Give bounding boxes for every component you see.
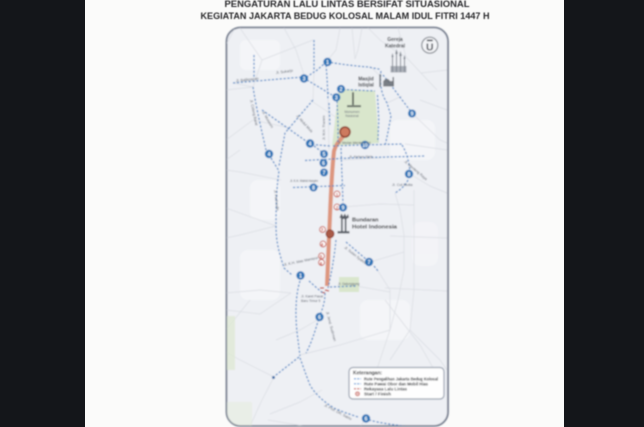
svg-text:4: 4 — [309, 142, 312, 148]
svg-text:6: 6 — [322, 161, 325, 167]
svg-text:1: 1 — [326, 60, 329, 66]
svg-text:8: 8 — [408, 172, 411, 178]
svg-text:Nasional: Nasional — [345, 114, 358, 118]
svg-text:Baru Timur 5: Baru Timur 5 — [301, 299, 321, 303]
svg-text:Istiqlal: Istiqlal — [358, 83, 374, 89]
svg-text:9: 9 — [411, 112, 414, 118]
svg-text:U: U — [426, 42, 434, 53]
svg-text:Bundaran: Bundaran — [352, 218, 379, 224]
svg-text:9: 9 — [342, 206, 345, 212]
svg-text:Jl. M.H. Thamrin: Jl. M.H. Thamrin — [322, 115, 326, 140]
svg-text:KEGIATAN JAKARTA BEDUG KOLOSAL: KEGIATAN JAKARTA BEDUG KOLOSAL MALAM IDU… — [201, 10, 490, 21]
svg-text:Hotel Indonesia: Hotel Indonesia — [352, 225, 398, 231]
svg-text:3: 3 — [335, 95, 338, 101]
svg-text:3: 3 — [303, 77, 306, 83]
svg-text:Start / Finish: Start / Finish — [364, 391, 391, 396]
svg-text:1: 1 — [299, 274, 302, 280]
svg-text:6: 6 — [365, 417, 368, 423]
svg-text:Gereja: Gereja — [387, 37, 403, 43]
svg-text:PENGATURAN LALU LINTAS BERSIFA: PENGATURAN LALU LINTAS BERSIFAT SITUASIO… — [225, 0, 470, 9]
svg-text:5: 5 — [323, 152, 326, 158]
svg-text:Jl. Kebon Sirih: Jl. Kebon Sirih — [349, 155, 373, 159]
svg-text:Jl. Medan Merdeka Sel.: Jl. Medan Merdeka Sel. — [338, 141, 372, 145]
svg-text:Jl. K.H. Wahid Hasyim: Jl. K.H. Wahid Hasyim — [290, 179, 318, 183]
svg-text:4: 4 — [268, 152, 271, 158]
svg-text:8: 8 — [312, 186, 315, 192]
svg-text:Katedral: Katedral — [385, 43, 406, 49]
svg-text:Masjid: Masjid — [358, 76, 374, 82]
svg-text:6: 6 — [318, 315, 321, 321]
svg-text:2: 2 — [340, 87, 343, 93]
svg-text:Jl. Cut Mutia: Jl. Cut Mutia — [392, 183, 413, 187]
svg-text:Jl. Galunggung: Jl. Galunggung — [338, 282, 360, 286]
svg-text:7: 7 — [323, 171, 326, 177]
svg-text:7: 7 — [368, 260, 371, 266]
